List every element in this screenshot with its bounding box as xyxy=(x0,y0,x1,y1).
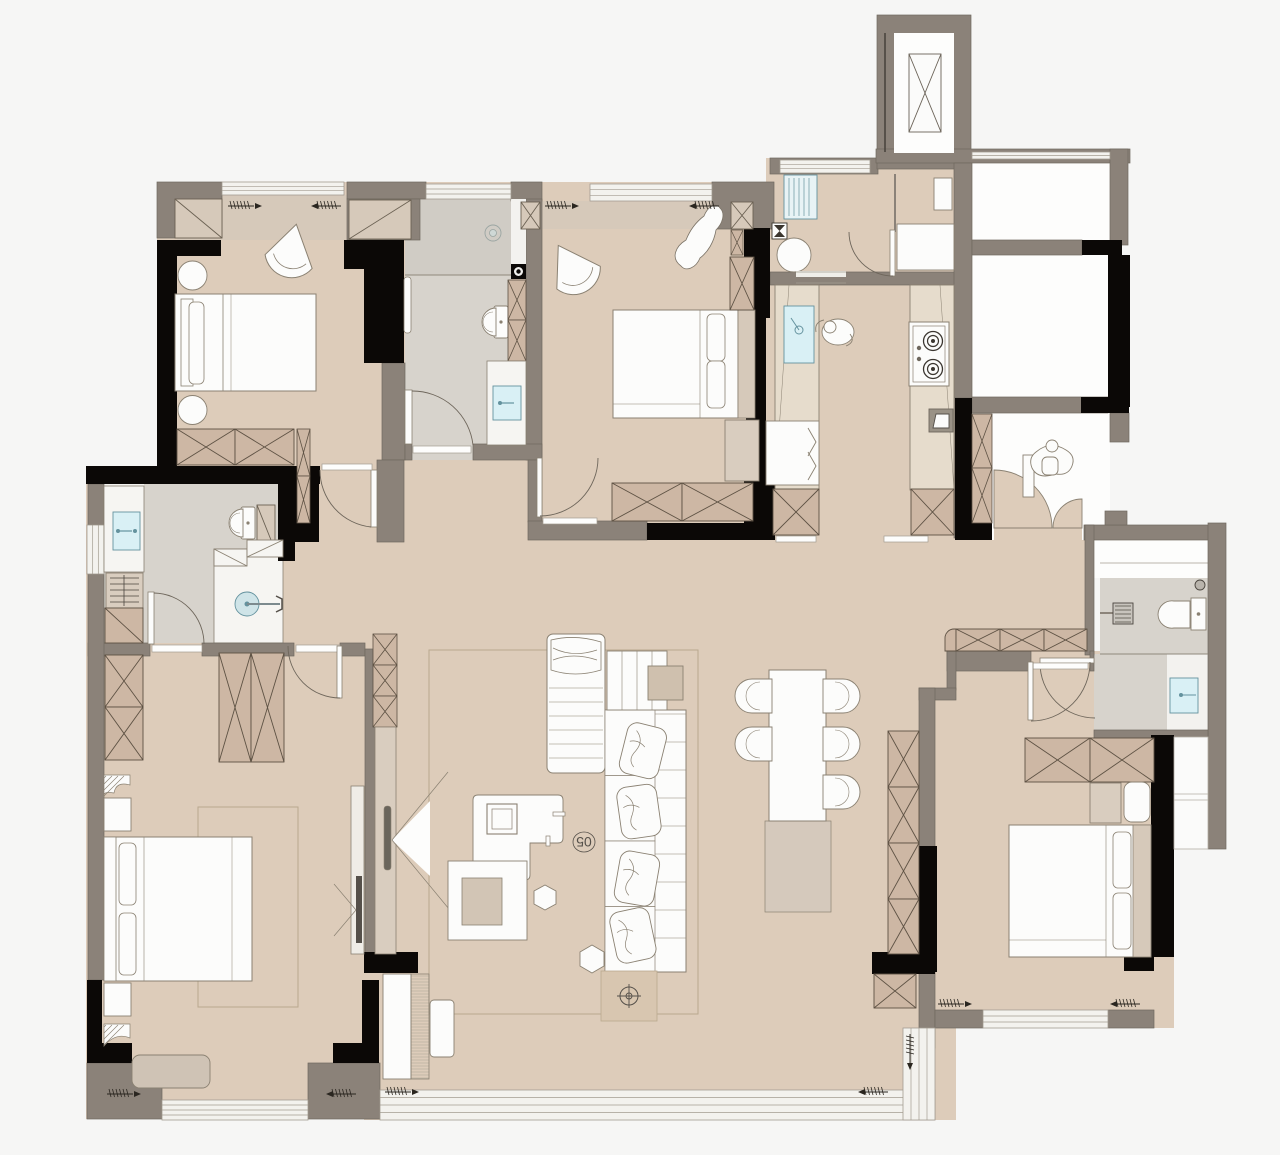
svg-text:05: 05 xyxy=(576,834,592,850)
